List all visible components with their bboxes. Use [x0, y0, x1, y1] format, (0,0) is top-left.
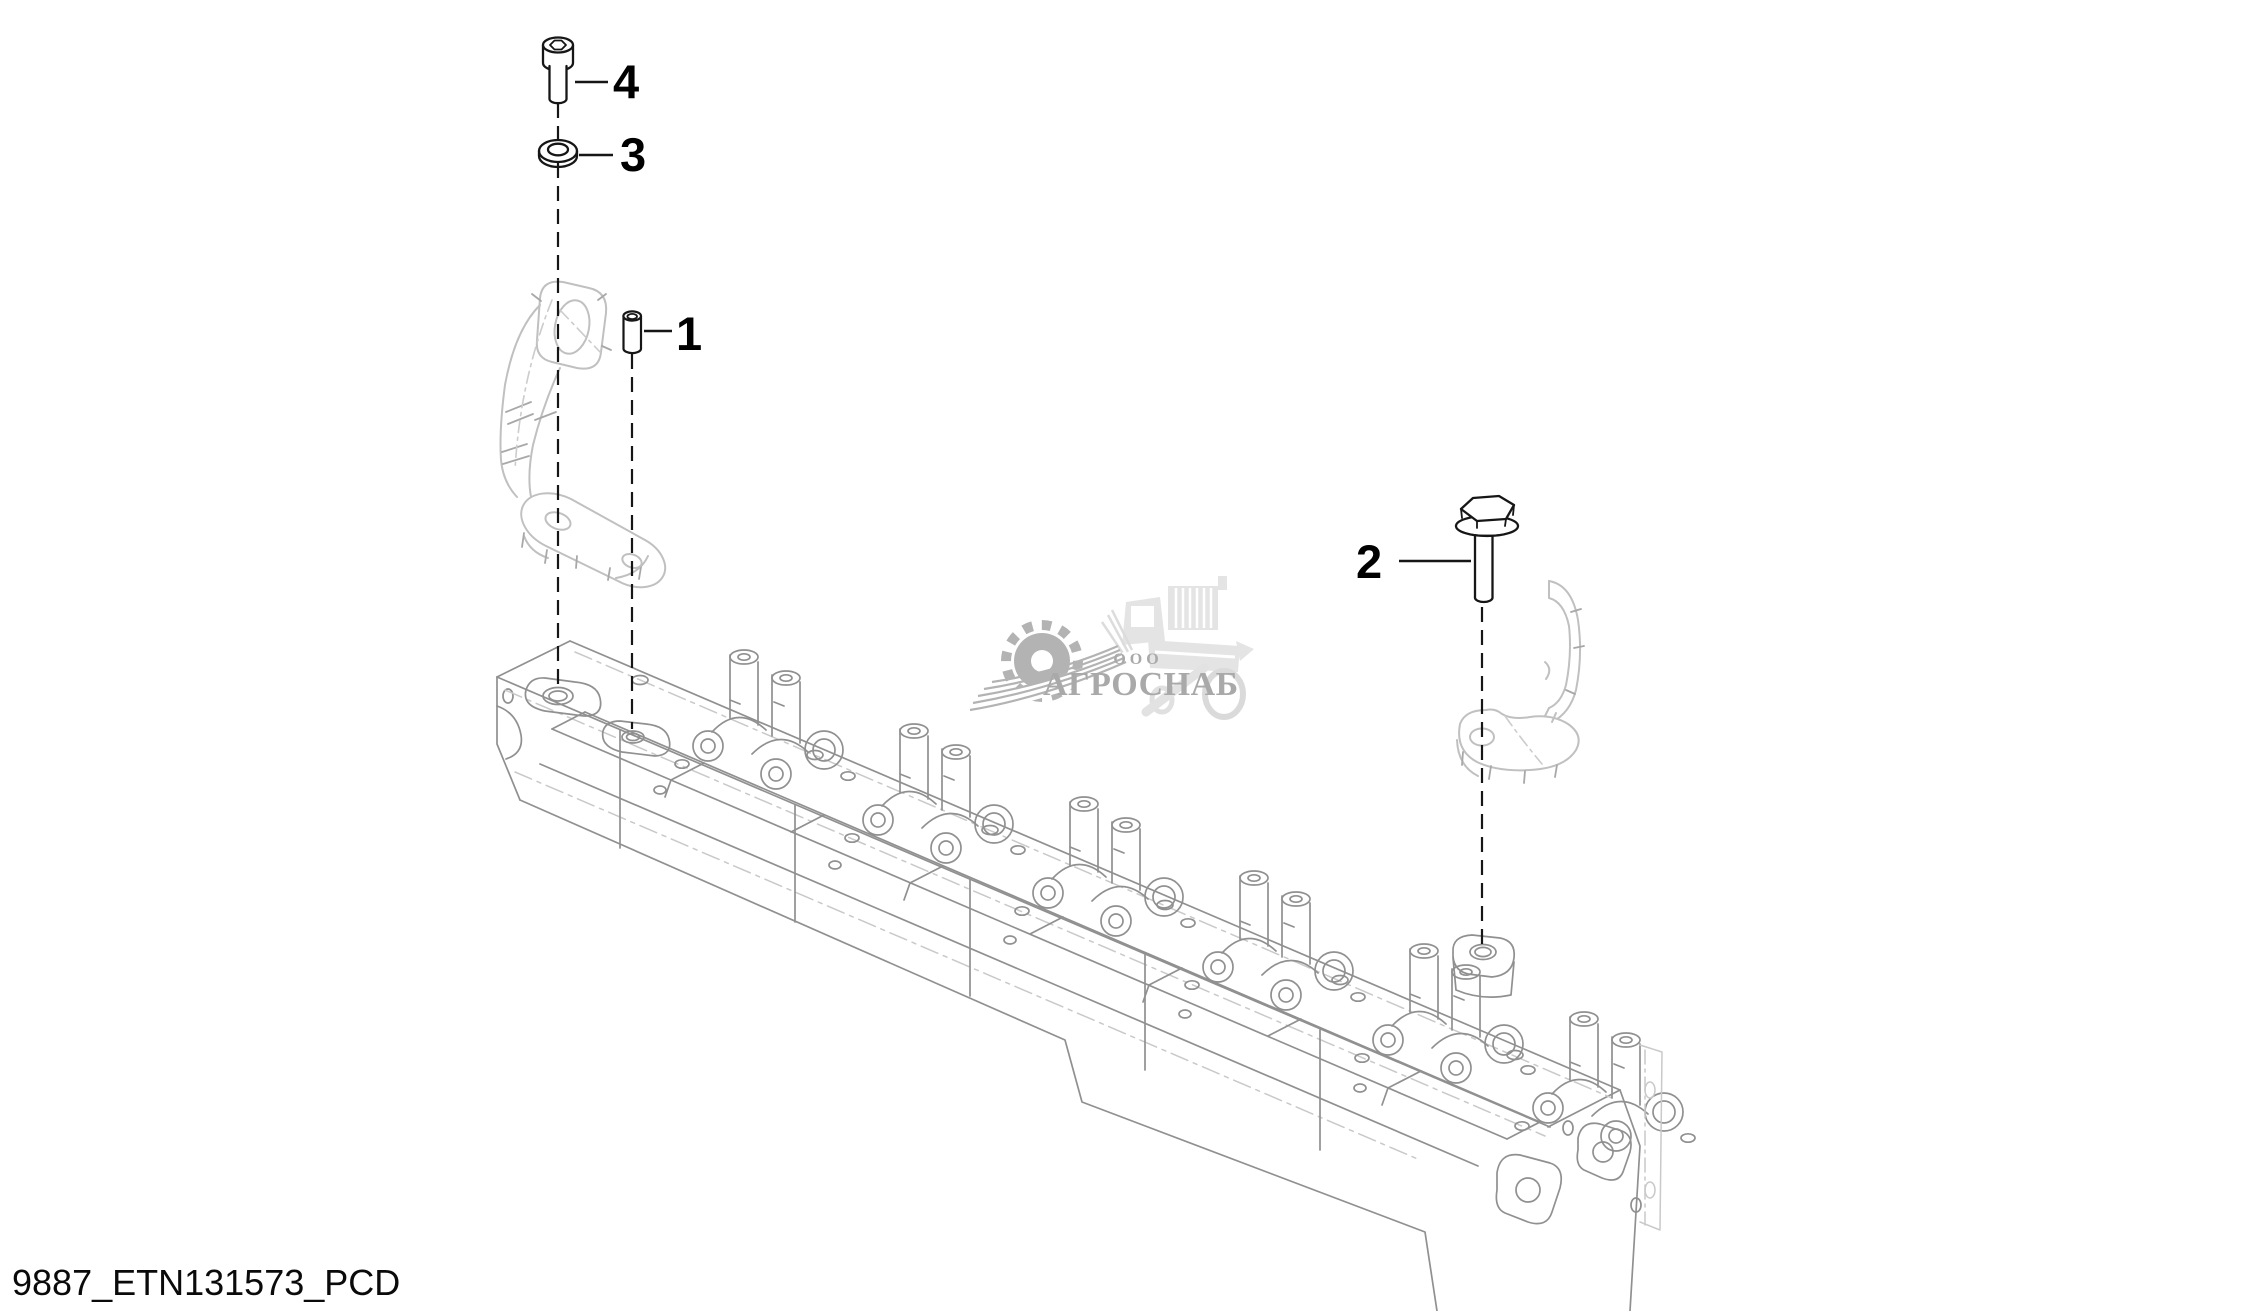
parts-diagram-canvas: 4 3 1 2 ООО АГРОСНАБ 9887_ETN131573_PCD: [0, 0, 2245, 1311]
callout-label-3: 3: [620, 131, 646, 178]
callout-label-1: 1: [676, 310, 702, 357]
callout-label-4: 4: [613, 58, 639, 105]
part-2-flange-bolt-drawing: [1456, 496, 1518, 602]
callout-label-2: 2: [1356, 538, 1382, 585]
watermark-company-name: АГРОСНАБ: [1043, 666, 1239, 704]
part-4-socket-screw-drawing: [543, 38, 573, 104]
part-3-washer-drawing: [539, 140, 577, 167]
drawing-caption: 9887_ETN131573_PCD: [12, 1262, 400, 1304]
part-1-dowel-pin-drawing: [623, 311, 641, 353]
right-lifting-bracket-drawing: [1457, 581, 1584, 783]
